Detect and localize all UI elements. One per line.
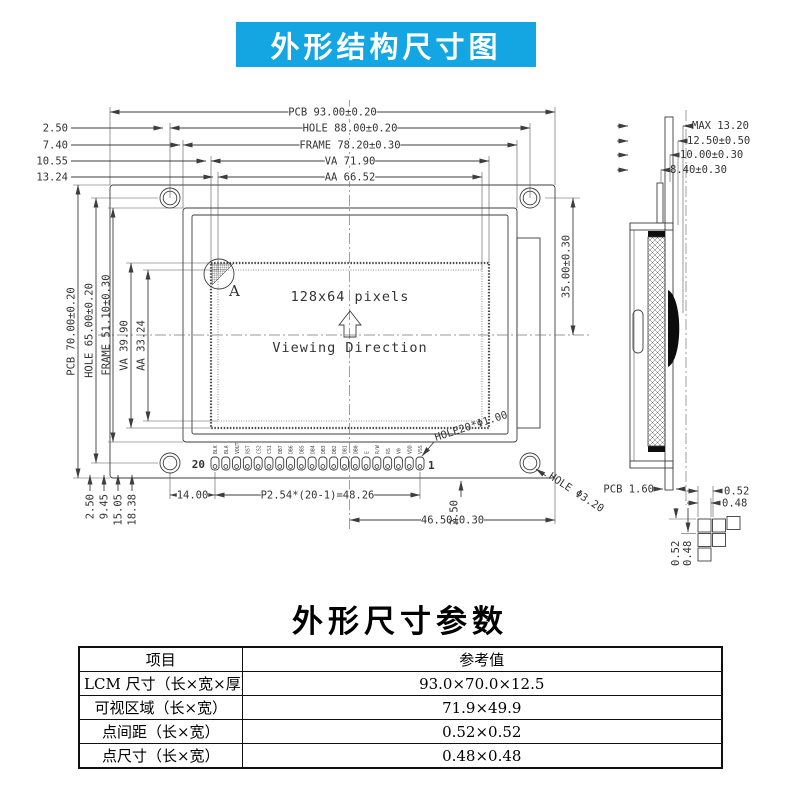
pin-hole <box>299 465 303 469</box>
side-seal-bottom <box>648 446 665 452</box>
title-banner: 外形结构尺寸图 <box>236 22 536 67</box>
table-cell-value: 0.52×0.52 <box>242 720 722 744</box>
pin-hole <box>289 465 293 469</box>
pin-label: DB0 <box>353 445 359 454</box>
table-header-item: 项目 <box>79 647 242 672</box>
table-cell-label: LCM 尺寸（长×宽×厚） <box>79 672 242 696</box>
dim-text: FRAME 51.10±0.30 <box>101 274 113 375</box>
pin-20-number: 20 <box>192 458 205 471</box>
pin-hole <box>343 465 347 469</box>
dim-text: 2.50 <box>449 500 461 525</box>
side-connector-tab <box>657 183 663 223</box>
pin-label: CS1 <box>267 445 273 454</box>
side-bezel-lens <box>668 290 679 367</box>
pin-hole <box>332 465 336 469</box>
table-header-value: 参考值 <box>242 647 722 672</box>
pin-label: R/W <box>375 445 381 454</box>
dim-text: 8.40±0.30 <box>670 164 727 176</box>
dim-text: PCB 93.00±0.20 <box>288 107 377 119</box>
table-cell-value: 0.48×0.48 <box>242 744 722 769</box>
pin-hole <box>224 465 228 469</box>
pin-label: DB2 <box>332 445 338 454</box>
pin-hole <box>353 465 357 469</box>
detail-a-label: A <box>228 282 240 300</box>
table-cell-label: 可视区域（长×宽） <box>79 696 242 720</box>
side-frame-bottom-flange <box>630 461 673 468</box>
pin-hole <box>256 465 260 469</box>
dim-text: 18.38 <box>127 494 139 526</box>
pin-hole <box>267 465 271 469</box>
page-title: 外形结构尺寸图 <box>270 24 501 66</box>
pin-hole <box>245 465 249 469</box>
dim-text: MAX 13.20 <box>692 120 749 132</box>
side-frame-top-flange <box>630 223 673 230</box>
dim-text: 0.48 <box>722 498 747 510</box>
dim-text: 0.48 <box>682 541 694 566</box>
pin-hole <box>407 465 411 469</box>
dim-text: PCB 1.60 <box>603 484 654 496</box>
dim-text: P2.54*(20-1)=48.26 <box>261 490 375 502</box>
pin-label: RS <box>386 448 392 454</box>
dim-line <box>536 469 546 476</box>
dim-text: HOLE20*Φ1.00 <box>433 409 509 444</box>
side-seal-top <box>648 231 665 237</box>
pin-label: VOUT <box>235 442 241 454</box>
dimension-drawing: A 128x64 pixels Viewing Direction 20 1 P… <box>0 85 800 597</box>
pixel-square <box>727 517 740 530</box>
table-row: 可视区域（长×宽） 71.9×49.9 <box>79 696 722 720</box>
dim-text: 2.50 <box>85 494 97 519</box>
dim-text: 12.50±0.50 <box>687 135 750 147</box>
pin-hole <box>321 465 325 469</box>
dim-text: VA 71.90 <box>325 156 376 168</box>
pin-hole <box>310 465 314 469</box>
dim-text: 2.50 <box>43 123 68 135</box>
pin-hole <box>278 465 282 469</box>
dim-text: 7.40 <box>43 140 68 152</box>
pin-label: E <box>364 451 370 454</box>
pin-hole <box>364 465 368 469</box>
pixel-square <box>698 548 711 561</box>
table-header-row: 项目 参考值 <box>79 647 722 672</box>
pin-hole <box>397 465 401 469</box>
table-cell-label: 点间距（长×宽） <box>79 720 242 744</box>
dim-text: FRAME 78.20±0.30 <box>299 140 400 152</box>
dim-text: 0.52 <box>724 486 749 498</box>
frame-opening <box>192 215 508 434</box>
mounting-holes <box>160 188 540 473</box>
pin-hole <box>235 465 239 469</box>
pin-hole <box>418 465 422 469</box>
table-cell-value: 71.9×49.9 <box>242 696 722 720</box>
pin-hole <box>386 465 390 469</box>
frame-outline <box>183 208 517 442</box>
pixel-square <box>698 519 711 532</box>
pixel-square <box>713 534 726 547</box>
pin-label: DB7 <box>278 445 284 454</box>
dim-text: 10.55 <box>36 156 68 168</box>
side-glass-stack <box>648 237 665 446</box>
pin-label: DB5 <box>300 445 306 454</box>
pin-label: DB4 <box>310 445 316 454</box>
dim-text: AA 33.24 <box>136 320 148 371</box>
parameter-table: 项目 参考值 LCM 尺寸（长×宽×厚） 93.0×70.0×12.5 可视区域… <box>78 646 723 769</box>
dim-text: PCB 70.00±0.20 <box>66 287 78 376</box>
table-cell-value: 93.0×70.0×12.5 <box>242 672 722 696</box>
resolution-label: 128x64 pixels <box>291 289 410 305</box>
pixel-square <box>713 519 726 532</box>
side-backlight-capsule <box>633 310 643 353</box>
pin-hole <box>213 465 217 469</box>
dim-text: 14.00 <box>177 490 209 502</box>
pin-hole <box>375 465 379 469</box>
table-row: 点尺寸（长×宽） 0.48×0.48 <box>79 744 722 769</box>
table-row: 点间距（长×宽） 0.52×0.52 <box>79 720 722 744</box>
pin-label: V0 <box>397 448 403 454</box>
pixel-square <box>698 534 711 547</box>
pin-label: BLK <box>213 445 219 454</box>
viewing-direction-arrow-icon <box>339 311 361 337</box>
pin-label: CS2 <box>256 445 262 454</box>
pin-label: DB6 <box>289 445 295 454</box>
dim-text: 15.05 <box>113 494 125 526</box>
table-cell-label: 点尺寸（长×宽） <box>79 744 242 769</box>
dim-text: 35.00±0.30 <box>561 235 573 298</box>
pin-label: VSS <box>418 445 424 454</box>
dim-text: 13.24 <box>36 172 68 184</box>
viewing-direction-label: Viewing Direction <box>272 340 427 356</box>
dim-text: 10.00±0.30 <box>680 149 743 161</box>
dim-text: HOLE 88.00±0.20 <box>303 123 398 135</box>
dim-text: 0.52 <box>670 541 682 566</box>
pin-label: BLA <box>224 445 230 454</box>
pin-label: RST <box>246 445 252 454</box>
dim-text: AA 66.52 <box>325 172 376 184</box>
dim-text: VA 39.90 <box>119 320 131 371</box>
dim-text: 9.45 <box>99 494 111 519</box>
pin-label: VDD <box>407 445 413 454</box>
section-title: 外形尺寸参数 <box>0 596 800 641</box>
pin-1-number: 1 <box>428 459 435 472</box>
pin-label: DB1 <box>343 445 349 454</box>
pin-label: DB3 <box>321 445 327 454</box>
table-row: LCM 尺寸（长×宽×厚） 93.0×70.0×12.5 <box>79 672 722 696</box>
glass-tab <box>517 238 540 428</box>
dim-text: HOLE 65.00±0.20 <box>84 283 96 378</box>
